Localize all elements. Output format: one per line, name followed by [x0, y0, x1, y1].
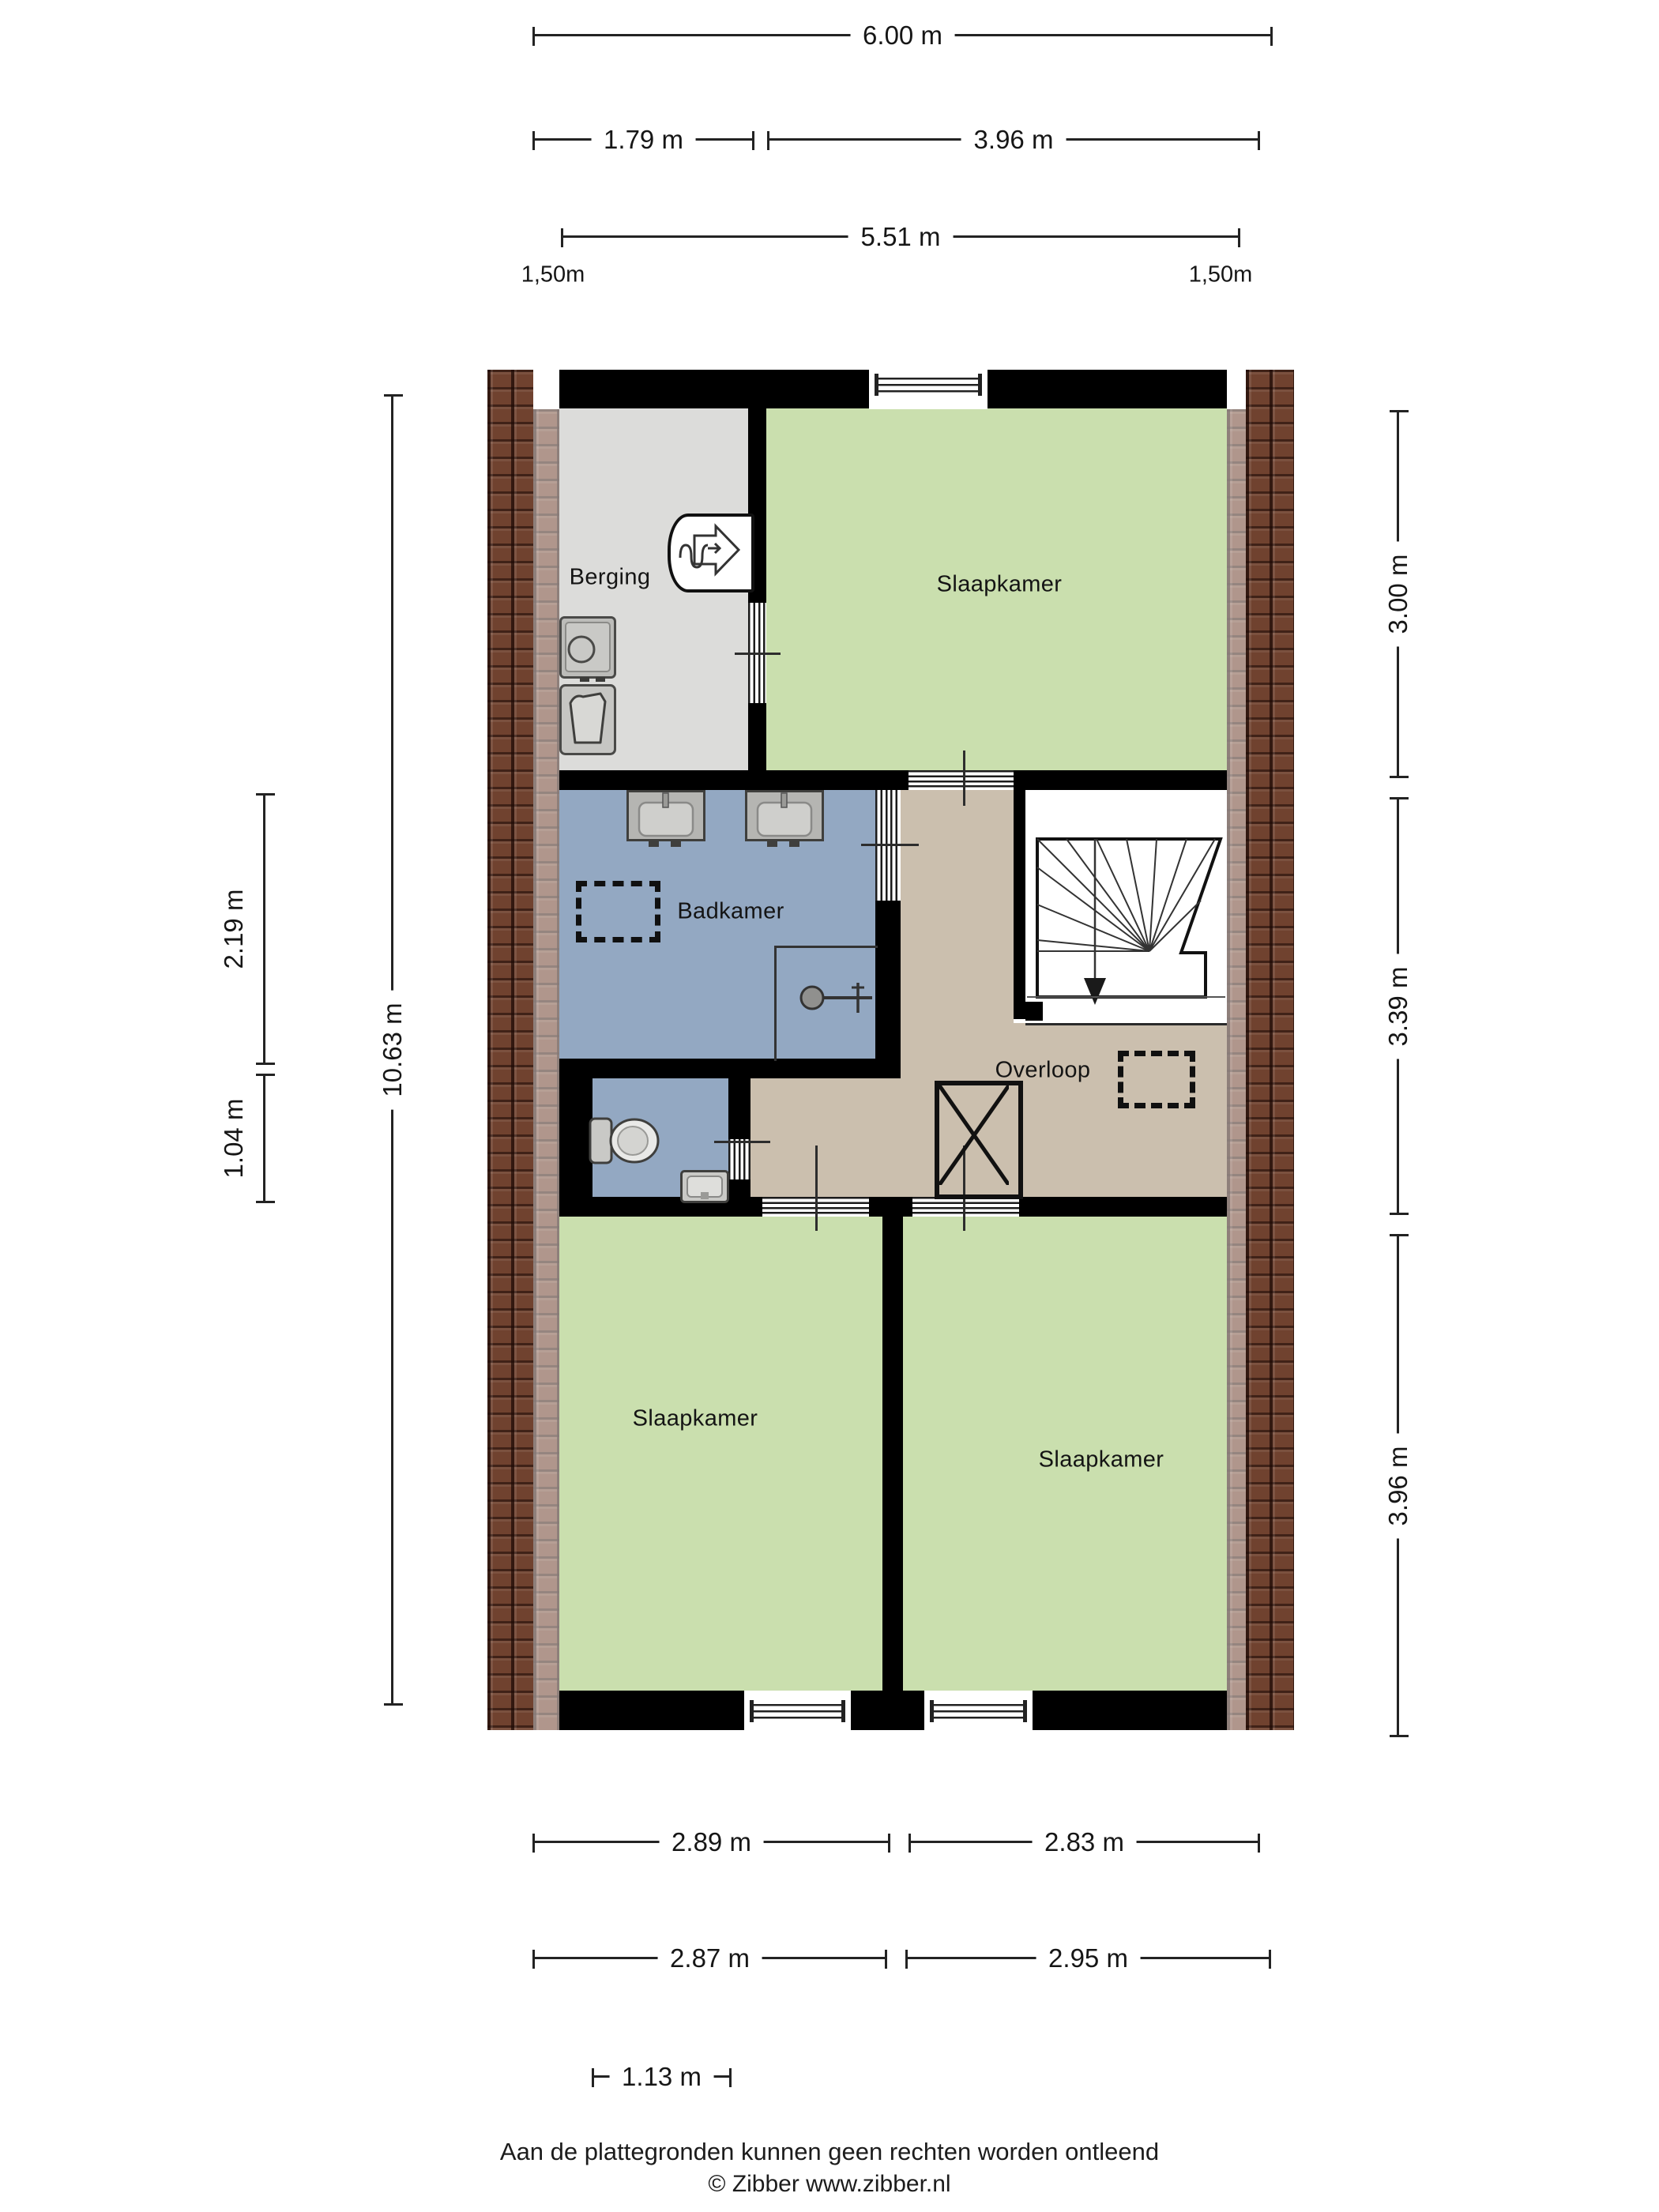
- room-label-berging: Berging: [570, 565, 651, 591]
- wall-badkamer-south: [559, 1059, 901, 1078]
- wall-mid-top-right: [1014, 770, 1227, 790]
- dim-slaapkamer-top-width: 3.96 m: [768, 138, 1259, 141]
- dim-bottom-offset: 1.13 m: [592, 2075, 731, 2078]
- wall-berging-slaapkamer-lower: [748, 703, 766, 770]
- roof-strip-left: [487, 370, 533, 1730]
- room-label-slaapkamer-left: Slaapkamer: [633, 1406, 758, 1432]
- wall-overloop-stairwell: [1014, 790, 1025, 1019]
- dim-bottom-right-b: 2.95 m: [906, 1957, 1270, 1959]
- dim-slaapkamer-top-height: 3.00 m: [1397, 411, 1399, 777]
- roof-strip-right-translucent: [1227, 409, 1246, 1730]
- door-toilet: [728, 1139, 750, 1179]
- window-glazing: [750, 1700, 845, 1722]
- sink-icon: [626, 790, 705, 850]
- roof-strip-left-translucent: [533, 409, 559, 1730]
- footer-copyright: © Zibber www.zibber.nl: [0, 2171, 1659, 2198]
- footer-disclaimer: Aan de plattegronden kunnen geen rechten…: [0, 2138, 1659, 2166]
- dim-badkamer-height: 2.19 m: [263, 794, 265, 1064]
- wall-bottom-rooms-north-right: [1019, 1197, 1227, 1217]
- door-leaf-line: [963, 750, 965, 806]
- toilet-icon: [589, 1116, 661, 1165]
- ventilation-unit-icon: [668, 513, 754, 592]
- wall-toilet-west: [559, 1078, 592, 1197]
- window-top-slaapkamer: [869, 359, 987, 409]
- room-overloop-floor-west: [750, 1078, 901, 1197]
- wall-badkamer-overloop: [875, 901, 901, 1078]
- wall-toilet-east-upper: [728, 1078, 750, 1139]
- laundry-basket-icon: [559, 684, 616, 755]
- wall-toilet-east-lower: [728, 1179, 750, 1197]
- room-overloop-floor-south: [1014, 1023, 1227, 1197]
- wall-top-right: [987, 370, 1227, 408]
- door-leaf-line: [714, 1141, 770, 1143]
- dim-toilet-height: 1.04 m: [263, 1074, 265, 1202]
- window-slaapkamer-right: [924, 1691, 1033, 1732]
- stairwell-foot-pier: [1025, 1002, 1043, 1021]
- knee-height-label-right: 1,50m: [1189, 262, 1253, 288]
- stairs-icon: [1025, 790, 1227, 1023]
- door-leaf-line: [861, 844, 919, 846]
- dim-total-height: 10.63 m: [391, 395, 393, 1705]
- shaft-x-marker: [935, 1081, 1023, 1199]
- wall-mid-top-left: [559, 770, 908, 790]
- floorplan-page: Berging Slaapkamer Badkamer Overloop Sla…: [0, 0, 1659, 2212]
- door-leaf-line: [815, 1145, 818, 1231]
- door-leaf-line: [735, 653, 781, 655]
- room-label-slaapkamer-right: Slaapkamer: [1039, 1447, 1164, 1473]
- door-slaapkamer-right: [912, 1197, 1019, 1217]
- dim-inner-width: 5.51 m: [562, 235, 1240, 238]
- window-glazing: [875, 374, 982, 396]
- roof-window-marker-overloop: [1118, 1051, 1195, 1108]
- wall-top-left: [559, 370, 869, 408]
- dim-total-width: 6.00 m: [533, 34, 1272, 36]
- wall-bottom-rooms-north-left: [559, 1197, 762, 1217]
- stairwell: [1025, 790, 1227, 1025]
- wall-bottom-right: [1033, 1691, 1227, 1730]
- shower-icon: [796, 978, 875, 1018]
- window-glazing: [930, 1700, 1027, 1722]
- room-label-badkamer: Badkamer: [677, 899, 784, 925]
- room-slaapkamer-left-floor: [559, 1217, 882, 1691]
- sink-icon: [745, 790, 824, 850]
- wall-partition-bedrooms: [882, 1217, 903, 1730]
- knee-height-label-left: 1,50m: [521, 262, 585, 288]
- wall-bottom-left: [559, 1691, 744, 1730]
- roof-window-marker-badkamer: [576, 881, 660, 942]
- room-label-slaapkamer-top: Slaapkamer: [937, 572, 1063, 598]
- wall-bottom-rooms-north-mid: [869, 1197, 912, 1217]
- roof-strip-right: [1246, 370, 1294, 1730]
- dim-bottom-rooms-height: 3.96 m: [1397, 1235, 1399, 1736]
- passage-overloop-slaapkamer-top: [908, 770, 1014, 790]
- dim-bottom-left-b: 2.87 m: [533, 1957, 886, 1959]
- dim-berging-width: 1.79 m: [533, 138, 754, 141]
- room-label-overloop: Overloop: [995, 1058, 1091, 1084]
- dim-bottom-left-a: 2.89 m: [533, 1841, 890, 1843]
- dim-bottom-right-a: 2.83 m: [909, 1841, 1259, 1843]
- window-slaapkamer-left: [744, 1691, 851, 1732]
- toilet-sink-icon: [680, 1170, 729, 1203]
- dim-overloop-height: 3.39 m: [1397, 798, 1399, 1214]
- washing-machine-icon: [559, 616, 616, 683]
